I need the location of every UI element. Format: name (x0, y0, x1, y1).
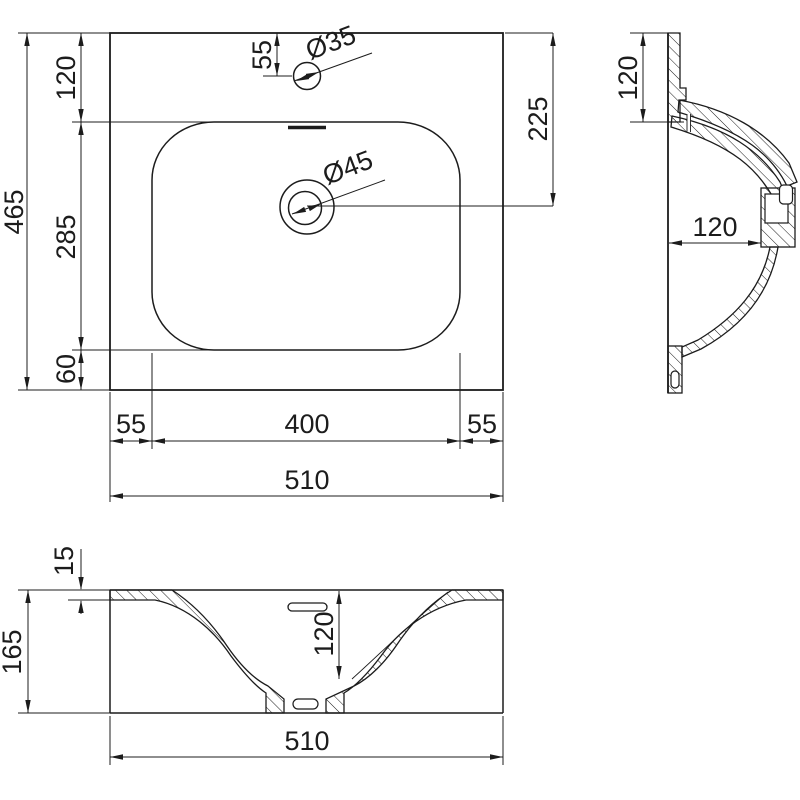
front-overflow-slot (288, 603, 327, 611)
dim-plan-back-margin: 60 (51, 354, 81, 384)
plan-view: 465 120 285 60 55 Ø35 Ø45 225 55 400 55 … (0, 19, 556, 502)
dim-plan-right-margin: 55 (467, 409, 497, 439)
dim-plan-overall-depth: 465 (0, 189, 29, 234)
dim-side-bowl-height: 120 (692, 212, 737, 242)
drawing-canvas: 465 120 285 60 55 Ø35 Ø45 225 55 400 55 … (0, 0, 800, 800)
washbasin-technical-drawing: 465 120 285 60 55 Ø35 Ø45 225 55 400 55 … (0, 0, 800, 800)
front-section-view: 15 165 120 510 (0, 546, 503, 765)
front-right-cut (326, 590, 503, 713)
front-drain-slot (293, 699, 318, 709)
dim-plan-left-margin: 55 (116, 409, 146, 439)
dim-front-overall-width: 510 (284, 726, 329, 756)
dim-plan-faucet-hole: Ø35 (302, 19, 360, 65)
dim-front-deck-thickness: 15 (49, 546, 79, 576)
basin-outline (152, 122, 460, 350)
drain-hole (289, 192, 322, 225)
dim-plan-drain-hole: Ø45 (319, 144, 377, 190)
dim-plan-basin-depth: 285 (51, 214, 81, 259)
dim-front-bowl-depth: 120 (309, 611, 339, 656)
dim-plan-edge-to-basin: 120 (51, 55, 81, 100)
dim-side-rim-to-basin: 120 (613, 55, 643, 100)
side-section-view: 120 120 (613, 33, 797, 393)
dim-plan-basin-width: 400 (284, 409, 329, 439)
dim-plan-drain-offset: 225 (523, 96, 553, 141)
front-left-cut (110, 590, 284, 713)
front-extension-lines (18, 590, 503, 765)
dim-plan-faucet-offset: 55 (247, 40, 277, 70)
countertop-outline (110, 33, 503, 390)
front-dimension-lines (25, 549, 503, 760)
front-silhouette (110, 590, 503, 713)
dim-plan-overall-width: 510 (284, 465, 329, 495)
side-drain-outlet (780, 185, 793, 204)
side-basin-lower-wall (682, 247, 778, 357)
side-bottom-notch (671, 371, 679, 388)
dim-front-overall-height: 165 (0, 629, 27, 674)
